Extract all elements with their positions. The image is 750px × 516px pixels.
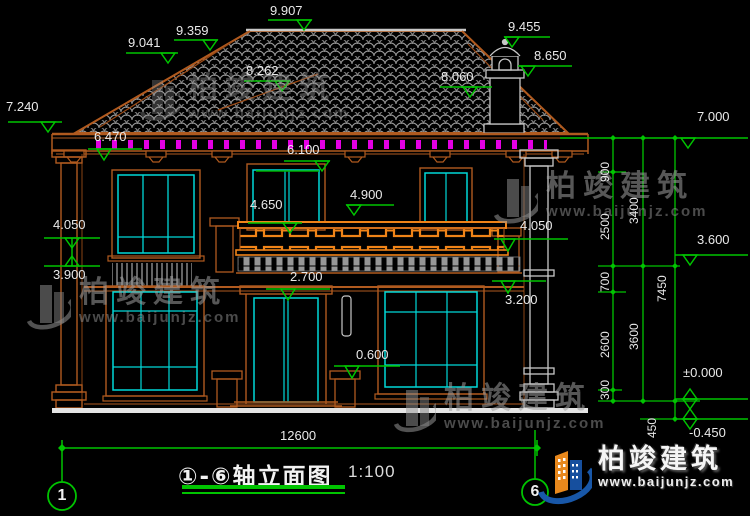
level-label-9041: 9.041 [128,36,161,50]
vdim-700: 700 [599,272,612,292]
brand-logo-url: www.baijunjz.com [598,474,734,489]
level-label-4650: 4.650 [250,198,283,212]
brand-logo: 柏竣建筑 www.baijunjz.com [536,444,734,508]
level-label-3900: 3.900 [53,268,86,282]
dentil-band [238,257,520,271]
level-label-0600: 0.600 [356,348,389,362]
vdim-300: 300 [599,380,612,400]
cad-canvas: 柏竣建筑 www.baijunjz.com 柏竣建筑 www.baijunjz.… [0,0,750,516]
upper-left-window [108,170,204,286]
vdim-900: 900 [599,162,612,182]
level-label-4900: 4.900 [350,188,383,202]
level-label-7240: 7.240 [6,100,39,114]
balcony-railing [236,222,522,273]
level-label-6470: 6.470 [94,130,127,144]
vdim-3400: 3400 [628,197,641,224]
level-label-neg-0450: -0.450 [689,426,726,440]
drawing-scale: 1:100 [348,462,396,482]
level-label-9455: 9.455 [508,20,541,34]
level-label-2700: 2.700 [290,270,323,284]
level-label-8650: 8.650 [534,49,567,63]
level-label-8060: 8.060 [441,70,474,84]
spandrel-hatch [112,263,192,286]
vdim-7450: 7450 [656,275,669,302]
level-label-3200: 3.200 [505,293,538,307]
entry-door [212,286,360,407]
elevation-drawing [0,0,750,516]
wall-strip [342,296,351,336]
title-underline [182,485,345,489]
vdim-450: 450 [646,418,659,438]
axis-number-1: 1 [54,487,70,505]
level-label-4050-right: 4.050 [520,219,553,233]
level-label-9907: 9.907 [270,4,303,18]
vdim-2600: 2600 [599,331,612,358]
lower-left-window [103,286,207,401]
lower-right-window [342,286,487,399]
level-label-8262: 8.262 [246,64,279,78]
rafter-tails [95,140,547,149]
title-underline-thin [182,492,345,494]
brand-logo-icon [536,444,592,508]
level-label-9359: 9.359 [176,24,209,38]
level-label-7000: 7.000 [697,110,730,124]
level-label-3600: 3.600 [697,233,730,247]
right-column [520,150,558,408]
overall-width-label: 12600 [280,429,316,443]
level-label-6100: 6.100 [287,143,320,157]
upper-right-window [420,168,472,230]
vdim-2500: 2500 [599,213,612,240]
level-label-zero: ±0.000 [683,366,723,380]
brand-logo-name: 柏竣建筑 [598,444,734,474]
eave [52,134,588,162]
vdim-3600: 3600 [628,323,641,350]
level-label-4050-left: 4.050 [53,218,86,232]
ground-line [52,408,588,413]
